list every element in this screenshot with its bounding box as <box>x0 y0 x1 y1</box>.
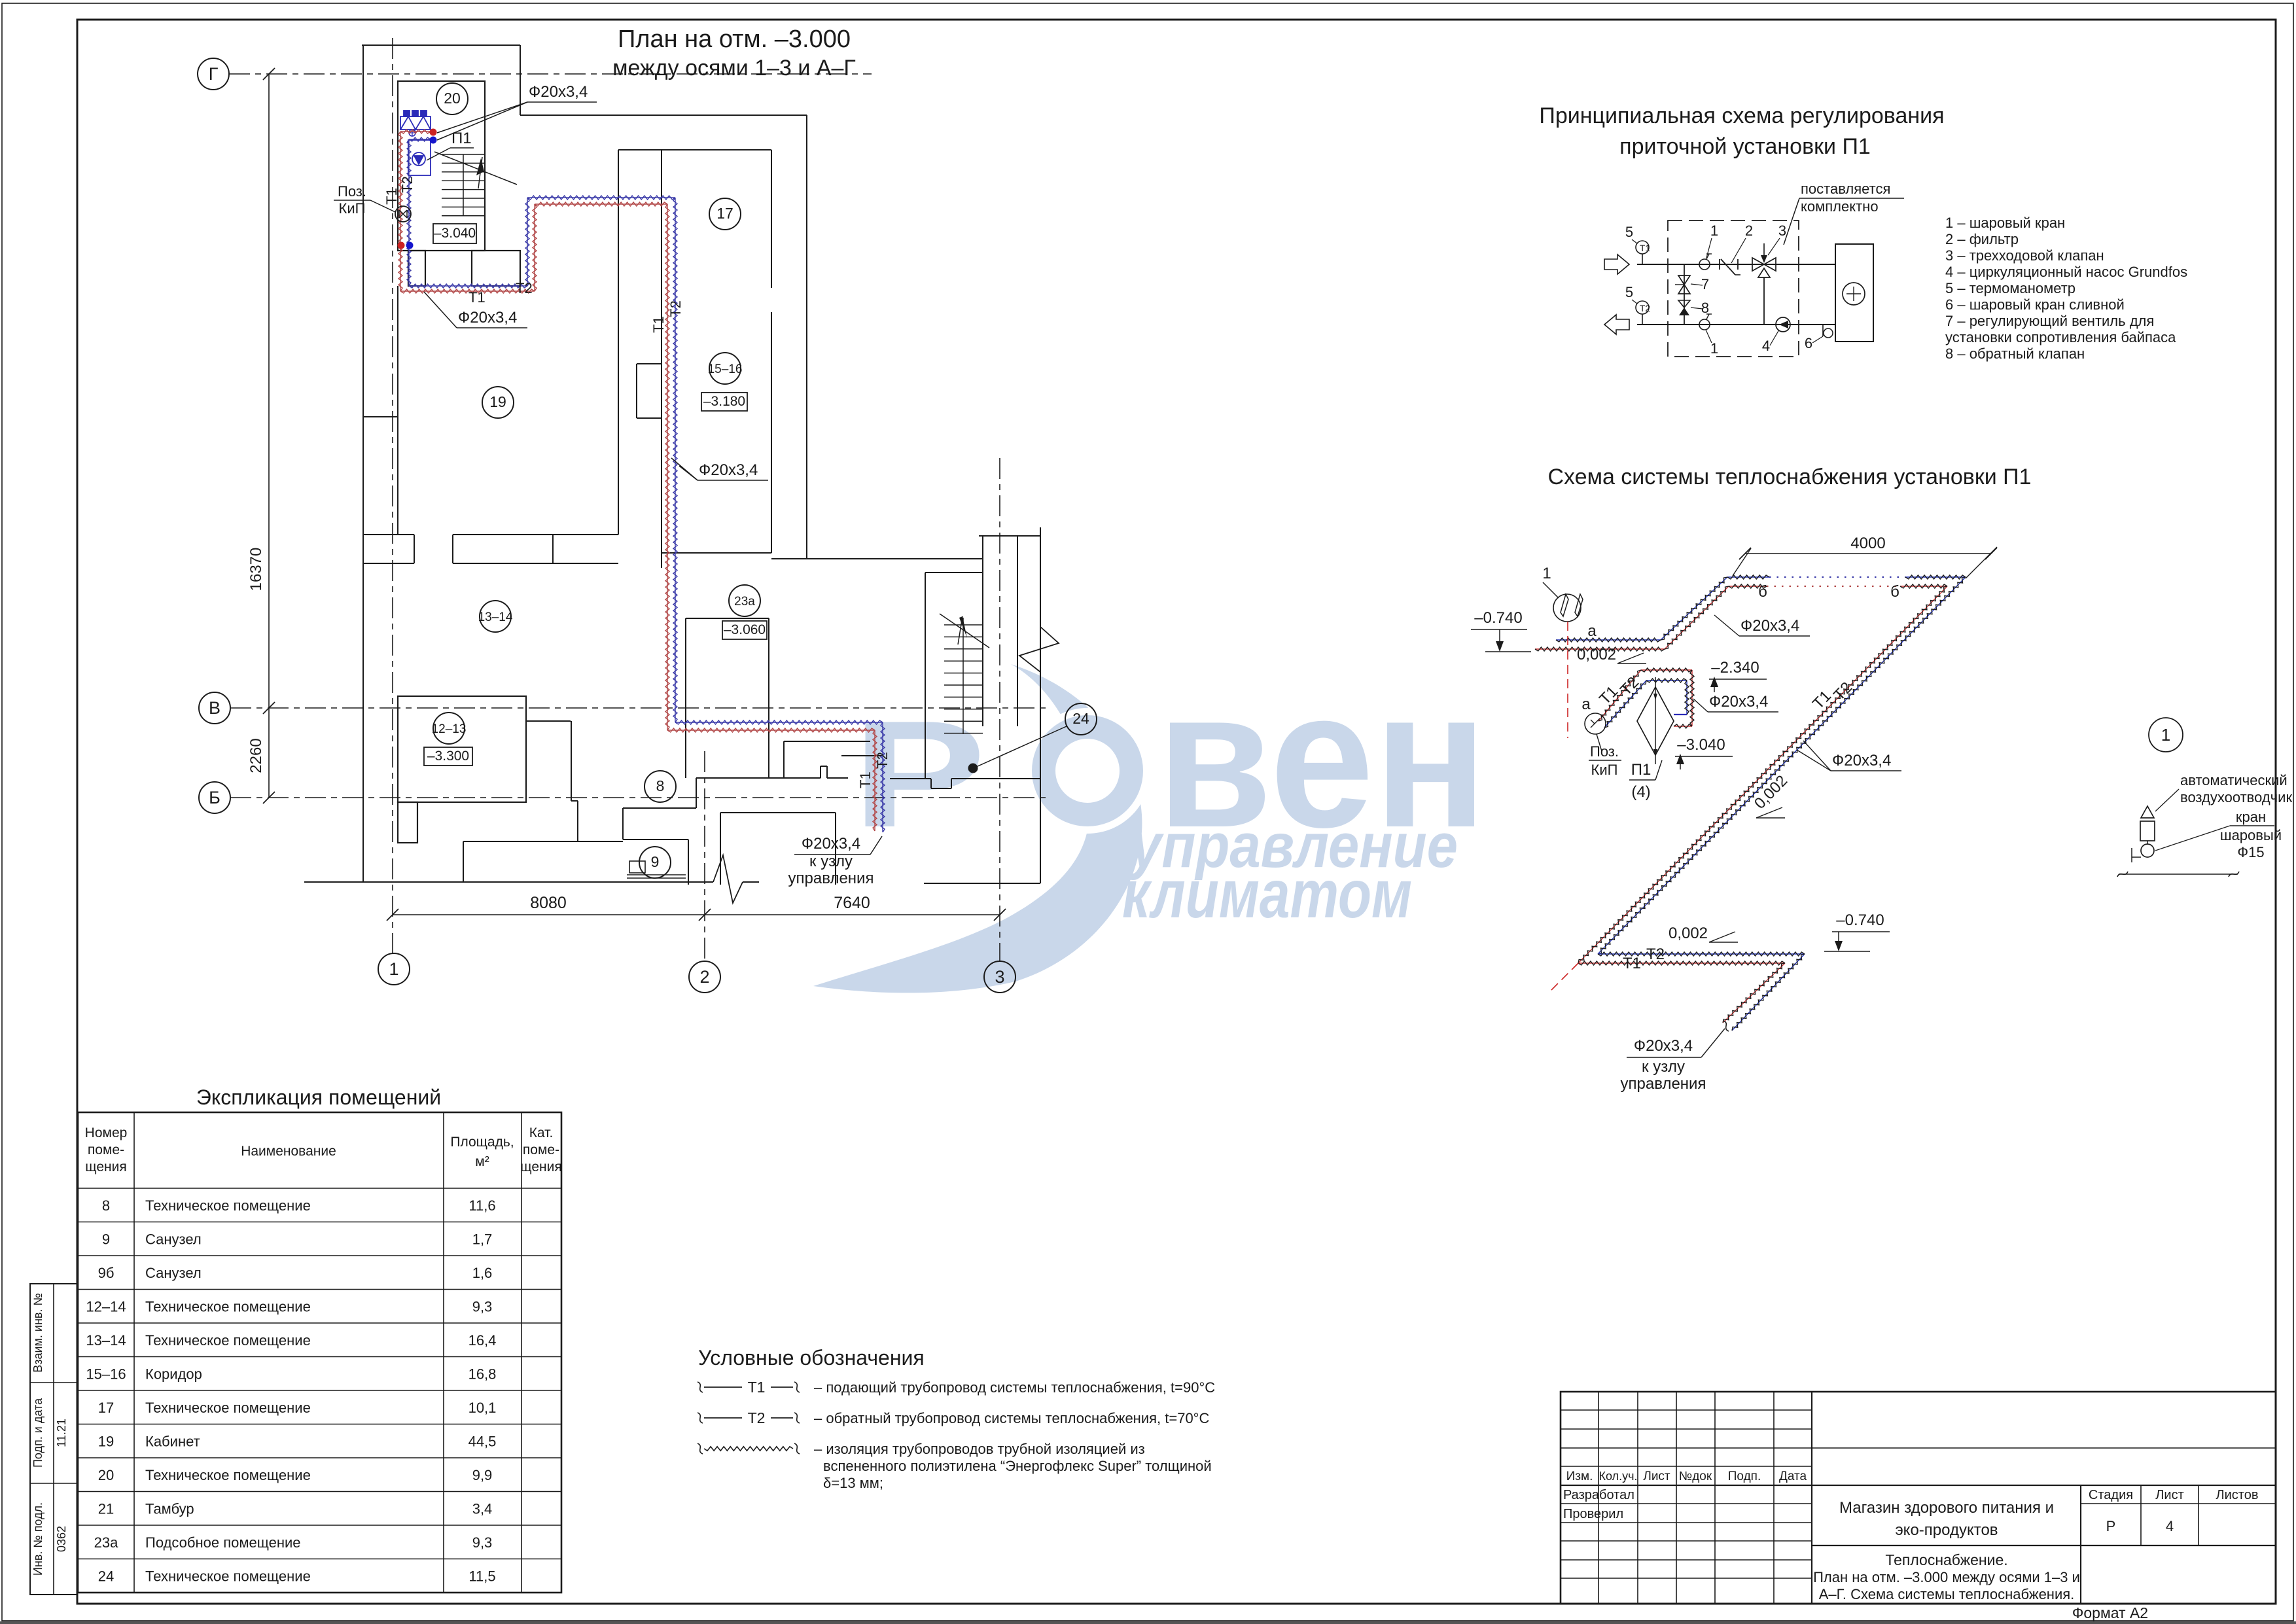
svg-text:воздухоотводчик: воздухоотводчик <box>2180 789 2292 805</box>
svg-text:№док: №док <box>1679 1470 1712 1483</box>
svg-text:8 – обратный клапан: 8 – обратный клапан <box>1945 345 2085 362</box>
svg-text:Стадия: Стадия <box>2089 1488 2133 1502</box>
svg-text:Дата: Дата <box>1779 1470 1807 1483</box>
svg-text:–3.040: –3.040 <box>1677 736 1725 754</box>
svg-text:7 – регулирующий вентиль для: 7 – регулирующий вентиль для <box>1945 313 2154 329</box>
svg-text:1: 1 <box>2161 725 2170 745</box>
svg-text:19: 19 <box>489 393 506 410</box>
svg-text:б: б <box>1758 583 1767 601</box>
svg-text:Площадь,: Площадь, <box>450 1135 514 1150</box>
svg-text:Т2: Т2 <box>748 1409 766 1426</box>
svg-text:Т2: Т2 <box>1646 945 1665 963</box>
svg-text:П1: П1 <box>1631 761 1651 779</box>
svg-text:управления: управления <box>1621 1075 1706 1093</box>
svg-text:климатом: климатом <box>1122 856 1412 932</box>
svg-text:9б: 9б <box>98 1265 115 1281</box>
svg-text:м²: м² <box>475 1154 489 1169</box>
svg-text:–3.040: –3.040 <box>434 226 476 241</box>
svg-text:11,5: 11,5 <box>468 1568 495 1584</box>
svg-text:комплектно: комплектно <box>1801 198 1879 215</box>
svg-text:– подающий трубопровод системы: – подающий трубопровод системы теплоснаб… <box>814 1379 1215 1396</box>
svg-text:Ф20х3,4: Ф20х3,4 <box>529 83 588 101</box>
svg-text:Г: Г <box>209 64 219 84</box>
svg-text:Т2: Т2 <box>667 300 684 317</box>
svg-text:11.21: 11.21 <box>55 1419 68 1447</box>
svg-text:Подсобное помещение: Подсобное помещение <box>145 1534 301 1551</box>
svg-text:а: а <box>1581 696 1591 713</box>
svg-text:21: 21 <box>98 1500 114 1517</box>
svg-text:Санузел: Санузел <box>145 1231 202 1247</box>
svg-text:Подп.: Подп. <box>1728 1470 1761 1483</box>
svg-text:б: б <box>1890 583 1899 601</box>
svg-text:Ф20х3,4: Ф20х3,4 <box>699 461 758 479</box>
svg-text:2: 2 <box>1745 222 1753 239</box>
svg-text:6 – шаровый кран сливной: 6 – шаровый кран сливной <box>1945 296 2125 313</box>
svg-text:7: 7 <box>1701 276 1709 292</box>
svg-text:3,4: 3,4 <box>472 1500 493 1517</box>
svg-text:Б: Б <box>209 788 221 807</box>
svg-text:поставляется: поставляется <box>1801 181 1890 197</box>
svg-text:δ=13 мм;: δ=13 мм; <box>823 1475 883 1491</box>
svg-text:Кол.уч.: Кол.уч. <box>1599 1470 1638 1483</box>
svg-text:9,3: 9,3 <box>472 1534 493 1551</box>
svg-text:13–14: 13–14 <box>478 610 513 624</box>
svg-text:20: 20 <box>98 1467 114 1483</box>
svg-text:Кабинет: Кабинет <box>145 1433 200 1449</box>
svg-text:Коридор: Коридор <box>145 1366 202 1382</box>
svg-text:1: 1 <box>1710 222 1718 239</box>
svg-text:–0.740: –0.740 <box>1836 911 1884 929</box>
svg-text:Т1: Т1 <box>1623 955 1641 972</box>
svg-text:Т1: Т1 <box>1640 243 1651 253</box>
svg-text:13–14: 13–14 <box>86 1332 126 1349</box>
svg-text:8: 8 <box>1701 300 1709 316</box>
svg-text:Ф20х3,4: Ф20х3,4 <box>802 835 860 853</box>
svg-text:Т1: Т1 <box>748 1379 766 1396</box>
svg-text:к узлу: к узлу <box>1642 1058 1685 1076</box>
svg-text:Ф20х3,4: Ф20х3,4 <box>1740 617 1799 635</box>
svg-text:Проверил: Проверил <box>1563 1507 1623 1521</box>
svg-text:П1: П1 <box>451 130 472 147</box>
svg-text:3: 3 <box>995 967 1004 987</box>
svg-text:1 – шаровый кран: 1 – шаровый кран <box>1945 215 2065 231</box>
svg-text:– обратный трубопровод системы: – обратный трубопровод системы теплоснаб… <box>814 1410 1209 1426</box>
svg-text:44,5: 44,5 <box>468 1433 497 1449</box>
svg-text:План на отм. –3.000: План на отм. –3.000 <box>618 26 851 53</box>
svg-text:поме-: поме- <box>88 1142 124 1157</box>
svg-text:9,9: 9,9 <box>472 1467 493 1483</box>
svg-text:Ф20х3,4: Ф20х3,4 <box>1709 693 1768 711</box>
svg-text:Техническое помещение: Техническое помещение <box>145 1298 311 1315</box>
svg-text:Схема системы теплоснабжения у: Схема системы теплоснабжения установки П… <box>1548 465 2032 489</box>
svg-text:16370: 16370 <box>247 548 265 591</box>
svg-text:Поз.: Поз. <box>1590 743 1619 760</box>
svg-text:Формат А2: Формат А2 <box>2072 1604 2148 1621</box>
svg-text:23а: 23а <box>94 1534 118 1551</box>
svg-text:17: 17 <box>98 1400 114 1416</box>
svg-text:Техническое помещение: Техническое помещение <box>145 1197 311 1214</box>
svg-text:1,7: 1,7 <box>472 1231 493 1247</box>
svg-text:установки сопротивления байпас: установки сопротивления байпаса <box>1945 329 2176 345</box>
svg-text:Условные обозначения: Условные обозначения <box>698 1346 925 1369</box>
svg-text:9: 9 <box>102 1231 110 1247</box>
svg-text:2260: 2260 <box>247 738 265 773</box>
svg-text:1,6: 1,6 <box>472 1265 493 1281</box>
svg-text:автоматический: автоматический <box>2180 772 2287 788</box>
svg-text:Т2: Т2 <box>399 176 415 193</box>
svg-text:0,002: 0,002 <box>1669 925 1708 942</box>
svg-text:1: 1 <box>389 959 398 979</box>
svg-text:В: В <box>209 698 221 718</box>
svg-text:16,8: 16,8 <box>468 1366 497 1382</box>
svg-text:Принципиальная схема регулиров: Принципиальная схема регулирования <box>1539 103 1944 128</box>
svg-text:10,1: 10,1 <box>468 1400 497 1416</box>
svg-text:–2.340: –2.340 <box>1711 659 1759 677</box>
svg-text:(4): (4) <box>1631 783 1650 801</box>
svg-text:Т1: Т1 <box>650 316 667 333</box>
svg-text:4: 4 <box>1762 338 1770 354</box>
svg-text:8080: 8080 <box>530 894 567 912</box>
svg-text:Т1: Т1 <box>383 188 400 205</box>
svg-text:2: 2 <box>699 967 709 987</box>
svg-text:Лист: Лист <box>1643 1470 1670 1483</box>
svg-text:эко-продуктов: эко-продуктов <box>1895 1521 1998 1539</box>
svg-text:КиП: КиП <box>1591 762 1618 778</box>
svg-text:Ф20х3,4: Ф20х3,4 <box>1634 1037 1693 1055</box>
svg-text:Р: Р <box>2106 1518 2116 1534</box>
svg-text:8: 8 <box>102 1197 110 1214</box>
svg-text:приточной установки П1: приточной установки П1 <box>1619 134 1871 159</box>
svg-text:вспененного полиэтилена “Энерг: вспененного полиэтилена “Энергофлекс Sup… <box>823 1458 1212 1474</box>
svg-text:Разработал: Разработал <box>1563 1488 1634 1502</box>
svg-text:Изм.: Изм. <box>1566 1470 1593 1483</box>
svg-text:Т1: Т1 <box>468 289 486 306</box>
svg-text:0,002: 0,002 <box>1577 646 1616 663</box>
svg-text:4 – циркуляционный насос Grund: 4 – циркуляционный насос Grundfos <box>1945 264 2187 280</box>
svg-text:Подп. и дата: Подп. и дата <box>31 1398 44 1468</box>
svg-text:Взаим. инв. №: Взаим. инв. № <box>31 1293 44 1373</box>
svg-text:7640: 7640 <box>834 894 870 912</box>
svg-text:кран: кран <box>2236 809 2266 825</box>
svg-text:между осями 1–3 и А–Г: между осями 1–3 и А–Г <box>612 56 856 80</box>
svg-text:Магазин здорового питания и: Магазин здорового питания и <box>1839 1499 2054 1517</box>
svg-text:0362: 0362 <box>55 1526 68 1552</box>
svg-text:5 – термоманометр: 5 – термоманометр <box>1945 280 2075 296</box>
svg-text:17: 17 <box>716 205 733 222</box>
svg-text:Т1: Т1 <box>857 771 874 788</box>
svg-text:–3.180: –3.180 <box>703 394 745 409</box>
svg-text:Лист: Лист <box>2155 1488 2183 1502</box>
svg-text:а: а <box>1587 622 1597 640</box>
svg-text:15–16: 15–16 <box>86 1366 126 1382</box>
svg-text:1: 1 <box>1542 565 1551 582</box>
svg-text:Тамбур: Тамбур <box>145 1500 194 1517</box>
svg-text:3 – трехходовой клапан: 3 – трехходовой клапан <box>1945 247 2104 264</box>
svg-text:к узлу: к узлу <box>809 853 853 870</box>
svg-text:8: 8 <box>656 777 665 794</box>
svg-text:управления: управления <box>788 870 874 887</box>
svg-text:Поз.: Поз. <box>338 183 366 200</box>
svg-text:16,4: 16,4 <box>468 1332 497 1349</box>
svg-text:Кат.: Кат. <box>529 1125 554 1140</box>
svg-text:Ф15: Ф15 <box>2237 844 2264 860</box>
svg-text:щения: щения <box>520 1159 561 1174</box>
svg-text:Техническое помещение: Техническое помещение <box>145 1467 311 1483</box>
svg-text:Ф20х3,4: Ф20х3,4 <box>458 309 517 327</box>
svg-text:Наименование: Наименование <box>241 1144 336 1159</box>
svg-text:Техническое помещение: Техническое помещение <box>145 1568 311 1584</box>
svg-text:9: 9 <box>651 853 660 870</box>
svg-text:11,6: 11,6 <box>468 1197 495 1214</box>
svg-text:Техническое помещение: Техническое помещение <box>145 1400 311 1416</box>
svg-text:4: 4 <box>2166 1518 2174 1534</box>
svg-text:–0.740: –0.740 <box>1474 609 1522 627</box>
svg-text:12–13: 12–13 <box>432 722 467 736</box>
svg-text:12–14: 12–14 <box>86 1298 126 1315</box>
svg-text:щения: щения <box>85 1159 126 1174</box>
svg-text:24: 24 <box>98 1568 114 1584</box>
svg-text:Техническое помещение: Техническое помещение <box>145 1332 311 1349</box>
svg-text:6: 6 <box>1805 335 1812 351</box>
svg-text:5: 5 <box>1625 284 1633 300</box>
svg-text:КиП: КиП <box>339 200 366 217</box>
svg-text:шаровый: шаровый <box>2220 827 2282 843</box>
svg-text:поме-: поме- <box>523 1142 559 1157</box>
svg-text:–3.300: –3.300 <box>427 749 469 764</box>
svg-text:Т2: Т2 <box>874 752 891 769</box>
svg-text:20: 20 <box>444 90 461 107</box>
svg-text:Теплоснабжение.: Теплоснабжение. <box>1885 1551 2007 1568</box>
svg-text:– изоляция трубопроводов трубн: – изоляция трубопроводов трубной изоляци… <box>814 1441 1145 1457</box>
svg-text:24: 24 <box>1072 710 1089 727</box>
svg-text:5: 5 <box>1625 224 1633 240</box>
svg-text:4000: 4000 <box>1850 535 1885 552</box>
svg-text:А–Г. Схема системы теплоснабже: А–Г. Схема системы теплоснабжения. <box>1819 1586 2075 1602</box>
svg-text:Т2: Т2 <box>516 280 533 296</box>
svg-text:9,3: 9,3 <box>472 1298 493 1315</box>
svg-text:Санузел: Санузел <box>145 1265 202 1281</box>
svg-text:–3.060: –3.060 <box>724 622 766 637</box>
svg-text:Листов: Листов <box>2216 1488 2259 1502</box>
svg-text:3: 3 <box>1778 222 1786 239</box>
svg-text:Инв. № подл.: Инв. № подл. <box>31 1502 44 1576</box>
svg-text:15–16: 15–16 <box>708 362 743 376</box>
svg-text:Ф20х3,4: Ф20х3,4 <box>1832 752 1891 769</box>
svg-text:Т2: Т2 <box>1640 303 1651 313</box>
svg-text:Номер: Номер <box>85 1125 128 1140</box>
svg-text:2 – фильтр: 2 – фильтр <box>1945 231 2019 247</box>
svg-text:Экспликация помещений: Экспликация помещений <box>196 1086 441 1109</box>
svg-text:План на отм. –3.000 между осям: План на отм. –3.000 между осями 1–3 и <box>1813 1569 2080 1585</box>
svg-text:23а: 23а <box>734 595 755 609</box>
svg-text:19: 19 <box>98 1433 114 1449</box>
